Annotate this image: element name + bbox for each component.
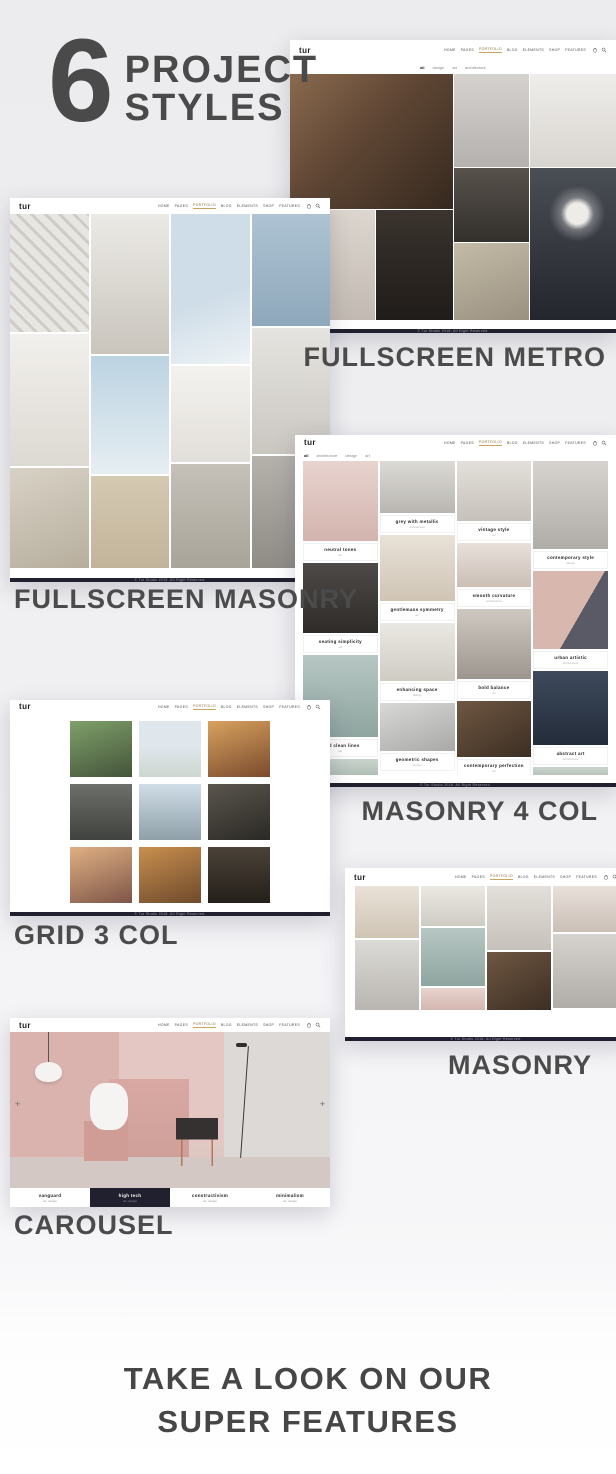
project-card[interactable]: geometric shapesdesign	[380, 753, 455, 771]
project-category: art	[492, 769, 496, 773]
hero-number: 6	[48, 34, 112, 128]
project-category: architecture	[486, 599, 502, 603]
masonry-column	[10, 214, 89, 568]
project-title: bold balance	[478, 685, 509, 690]
carousel-tabs: vanguard art, design high tech art, desi…	[10, 1188, 330, 1207]
hero-decor-floor-lamp-head	[236, 1043, 247, 1047]
hero-decor-cloth	[90, 1083, 128, 1130]
project-card[interactable]: urban artisticarchitecture	[533, 651, 608, 669]
carousel-tab-title: minimalism	[276, 1193, 304, 1198]
project-photo[interactable]	[171, 214, 250, 364]
screenshot-card-carousel[interactable]: tur HOMEPAGESPORTFOLIOBLOGELEMENTSSHOPFE…	[10, 1018, 330, 1207]
hero-title-line2: STYLES	[125, 89, 318, 127]
nav-item[interactable]: FEATURES	[279, 204, 300, 208]
project-category: art	[492, 691, 496, 695]
copyright-text: © Tur Studio 2018. All Right Reserved.	[417, 329, 488, 333]
project-photo[interactable]	[421, 988, 485, 1010]
project-photo[interactable]	[380, 703, 455, 751]
nav-item[interactable]: FEATURES	[279, 1023, 300, 1027]
portfolio-filters: allarchitecturedesignart	[295, 450, 616, 461]
project-card[interactable]: vintage styleart	[457, 523, 532, 541]
filter-item[interactable]: architecture	[316, 453, 337, 458]
carousel-tab-category: art, design	[123, 1199, 137, 1203]
project-title: urban artistic	[554, 655, 587, 660]
masonry-column: contemporary styledesign urban artistica…	[533, 461, 608, 775]
header-icons	[592, 440, 607, 446]
screenshot-card-masonry[interactable]: tur HOMEPAGESPORTFOLIOBLOGELEMENTSSHOPFE…	[345, 868, 616, 1041]
mini-nav: HOMEPAGESPORTFOLIOBLOGELEMENTSSHOPFEATUR…	[158, 203, 300, 209]
screenshot-card-fullscreen-masonry[interactable]: tur HOMEPAGESPORTFOLIOBLOGELEMENTSSHOPFE…	[10, 198, 330, 582]
project-photo[interactable]	[454, 168, 529, 242]
features-heading-line1: TAKE A LOOK ON OUR	[124, 1361, 493, 1396]
search-icon[interactable]	[315, 704, 321, 710]
hero-decor-chair	[176, 1118, 218, 1166]
project-photo[interactable]	[533, 671, 608, 745]
project-photo[interactable]	[355, 886, 419, 938]
project-photo[interactable]	[421, 886, 485, 926]
project-category: design	[413, 693, 422, 697]
project-title: contemporary style	[547, 555, 594, 560]
project-photo[interactable]	[421, 928, 485, 986]
project-photo[interactable]	[208, 784, 270, 840]
carousel-tab-title: constructivism	[192, 1193, 228, 1198]
cart-icon[interactable]	[603, 874, 609, 880]
mini-nav: HOMEPAGESPORTFOLIOBLOGELEMENTSSHOPFEATUR…	[158, 704, 300, 710]
cart-icon[interactable]	[306, 1022, 312, 1028]
project-category: architecture	[409, 525, 425, 529]
project-photo[interactable]	[10, 468, 89, 568]
project-card[interactable]: neutral tonesart	[303, 543, 378, 561]
header-icons	[603, 874, 616, 880]
project-photo[interactable]	[487, 886, 551, 950]
hero-decor-pendant-lamp	[35, 1062, 62, 1082]
project-title: seating simplicity	[319, 639, 362, 644]
project-grid	[10, 713, 330, 903]
nav-item[interactable]: ELEMENTS	[534, 875, 555, 879]
style-label-carousel: CAROUSEL	[14, 1210, 174, 1241]
project-card[interactable]: grey with metallicarchitecture	[380, 515, 455, 533]
project-photo[interactable]	[208, 721, 270, 777]
mini-browser-header: tur HOMEPAGESPORTFOLIOBLOGELEMENTSSHOPFE…	[345, 868, 616, 886]
features-intro-section: TAKE A LOOK ON OUR SUPER FEATURES	[0, 1262, 616, 1474]
project-photo[interactable]	[457, 609, 532, 679]
hero-title-line1: PROJECT	[125, 51, 318, 89]
project-photo[interactable]	[171, 366, 250, 462]
search-icon[interactable]	[315, 203, 321, 209]
cart-icon[interactable]	[306, 704, 312, 710]
carousel-next-icon[interactable]: +	[320, 1100, 325, 1109]
filter-item[interactable]: design	[433, 65, 445, 70]
project-card[interactable]: smooth curvaturearchitecture	[457, 589, 532, 607]
project-photo[interactable]	[457, 461, 532, 521]
mini-browser-header: tur HOMEPAGESPORTFOLIOBLOGELEMENTSSHOPFE…	[290, 40, 616, 60]
copyright-text: © Tur Studio 2018. All Right Reserved.	[450, 1037, 521, 1041]
site-logo[interactable]: tur	[19, 702, 31, 711]
search-icon[interactable]	[601, 47, 607, 53]
project-grid	[345, 886, 616, 1010]
mini-browser-header: tur HOMEPAGESPORTFOLIOBLOGELEMENTSSHOPFE…	[10, 700, 330, 713]
cart-icon[interactable]	[592, 47, 598, 53]
nav-item[interactable]: HOME	[444, 48, 456, 52]
search-icon[interactable]	[315, 1022, 321, 1028]
header-icons	[306, 1022, 321, 1028]
project-photo[interactable]	[70, 721, 132, 777]
nav-item[interactable]: ELEMENTS	[237, 1023, 258, 1027]
project-title: gentlemans symmetry	[391, 607, 444, 612]
project-card[interactable]: bold balanceart	[457, 681, 532, 699]
project-grid: neutral tonesart seating simplicityart b…	[295, 461, 616, 775]
nav-item[interactable]: FEATURES	[565, 48, 586, 52]
project-title: abstract art	[557, 751, 585, 756]
filter-item[interactable]: design	[345, 453, 357, 458]
project-photo[interactable]	[70, 784, 132, 840]
style-label-masonry-4-col: MASONRY 4 COL	[361, 796, 598, 827]
project-category: art	[339, 749, 343, 753]
nav-item[interactable]: PAGES	[461, 48, 474, 52]
project-photo[interactable]	[252, 214, 331, 326]
hero-title: PROJECT STYLES	[125, 51, 318, 128]
site-logo[interactable]: tur	[354, 873, 366, 882]
masonry-column	[553, 886, 616, 1010]
nav-item[interactable]: PAGES	[472, 875, 485, 879]
mini-browser-header: tur HOMEPAGESPORTFOLIOBLOGELEMENTSSHOPFE…	[10, 1018, 330, 1032]
project-grid	[10, 214, 330, 568]
nav-item[interactable]: BLOG	[221, 1023, 232, 1027]
project-photo[interactable]	[139, 847, 201, 903]
carousel-tab-category: art, design	[203, 1199, 217, 1203]
project-card[interactable]: seating simplicityart	[303, 635, 378, 653]
project-photo[interactable]	[355, 940, 419, 1010]
nav-item[interactable]: ELEMENTS	[237, 204, 258, 208]
site-footer-bar: © Tur Studio 2018. All Right Reserved.	[345, 1037, 616, 1041]
screenshot-card-fullscreen-metro[interactable]: tur HOMEPAGESPORTFOLIOBLOGELEMENTSSHOPFE…	[290, 40, 616, 333]
masonry-column	[171, 214, 250, 568]
mini-nav: HOMEPAGESPORTFOLIOBLOGELEMENTSSHOPFEATUR…	[444, 47, 586, 53]
project-photo[interactable]	[139, 721, 201, 777]
nav-item[interactable]: PORTFOLIO	[193, 1022, 216, 1028]
screenshot-card-grid-3-col[interactable]: tur HOMEPAGESPORTFOLIOBLOGELEMENTSSHOPFE…	[10, 700, 330, 916]
project-photo[interactable]	[380, 623, 455, 681]
filter-item[interactable]: architecture	[465, 65, 486, 70]
cart-icon[interactable]	[592, 440, 598, 446]
carousel-tab-title: high tech	[119, 1193, 142, 1198]
carousel-tab[interactable]: constructivism art, design	[170, 1188, 250, 1207]
project-title: neutral tones	[324, 547, 356, 552]
project-photo[interactable]	[70, 847, 132, 903]
site-logo[interactable]: tur	[19, 202, 31, 211]
site-footer-bar: © Tur Studio 2018. All Right Reserved.	[10, 912, 330, 916]
search-icon[interactable]	[612, 874, 616, 880]
project-category: art	[492, 533, 496, 537]
project-photo[interactable]	[91, 214, 170, 354]
project-category: architecture	[563, 661, 579, 665]
filter-item[interactable]: all	[420, 65, 424, 70]
carousel-tab-category: art, design	[283, 1199, 297, 1203]
nav-item[interactable]: PORTFOLIO	[479, 47, 502, 53]
project-category: art	[415, 613, 419, 617]
project-photo[interactable]	[454, 243, 529, 320]
hero-heading: 6 PROJECT STYLES	[48, 34, 318, 128]
project-photo[interactable]	[380, 461, 455, 513]
nav-item[interactable]: HOME	[158, 705, 170, 709]
carousel-tab[interactable]: high tech art, design	[90, 1188, 170, 1207]
project-photo[interactable]	[533, 571, 608, 649]
project-category: art	[339, 553, 343, 557]
filter-item[interactable]: art	[452, 65, 457, 70]
project-photo[interactable]	[553, 934, 616, 1008]
masonry-column	[487, 886, 551, 1010]
project-photo[interactable]	[530, 74, 616, 167]
copyright-text: © Tur Studio 2018. All Right Reserved.	[134, 578, 205, 582]
carousel-slide-image[interactable]: + +	[10, 1032, 330, 1188]
carousel-tab-category: art, design	[43, 1199, 57, 1203]
project-photo[interactable]	[303, 461, 378, 541]
nav-item[interactable]: HOME	[158, 1023, 170, 1027]
project-card[interactable]: enhancing spacedesign	[380, 683, 455, 701]
features-heading-line2: SUPER FEATURES	[157, 1404, 458, 1439]
mini-nav: HOMEPAGESPORTFOLIOBLOGELEMENTSSHOPFEATUR…	[444, 440, 586, 446]
filter-item[interactable]: art	[365, 453, 370, 458]
project-photo[interactable]	[553, 886, 616, 932]
project-photo[interactable]	[457, 543, 532, 587]
nav-item[interactable]: SHOP	[263, 204, 274, 208]
nav-item[interactable]: PORTFOLIO	[479, 440, 502, 446]
nav-item[interactable]: HOME	[455, 875, 467, 879]
carousel-prev-icon[interactable]: +	[15, 1100, 20, 1109]
project-title: enhancing space	[397, 687, 438, 692]
header-icons	[306, 203, 321, 209]
masonry-column: vintage styleart smooth curvaturearchite…	[457, 461, 532, 775]
project-title: geometric shapes	[396, 757, 439, 762]
header-icons	[306, 704, 321, 710]
project-photo[interactable]	[10, 334, 89, 466]
project-card[interactable]: gentlemans symmetryart	[380, 603, 455, 621]
nav-item[interactable]: SHOP	[560, 875, 571, 879]
nav-item[interactable]: PORTFOLIO	[490, 874, 513, 880]
nav-item[interactable]: HOME	[444, 441, 456, 445]
project-photo[interactable]	[454, 74, 529, 167]
style-label-masonry: MASONRY	[448, 1050, 592, 1081]
copyright-text: © Tur Studio 2018. All Right Reserved.	[420, 783, 491, 787]
project-photo[interactable]	[530, 168, 616, 320]
project-category: design	[413, 763, 422, 767]
mini-browser-header: tur HOMEPAGESPORTFOLIOBLOGELEMENTSSHOPFE…	[10, 198, 330, 214]
project-category: architecture	[563, 757, 579, 761]
masonry-column	[91, 214, 170, 568]
nav-item[interactable]: ELEMENTS	[523, 441, 544, 445]
nav-item[interactable]: PAGES	[461, 441, 474, 445]
project-grid	[290, 74, 616, 320]
project-title: vintage style	[478, 527, 509, 532]
nav-item[interactable]: BLOG	[507, 441, 518, 445]
project-photo[interactable]	[533, 767, 608, 775]
project-photo[interactable]	[533, 461, 608, 549]
project-photo[interactable]	[171, 464, 250, 568]
nav-item[interactable]: BLOG	[507, 48, 518, 52]
project-photo[interactable]	[376, 210, 453, 320]
masonry-column	[355, 886, 419, 1010]
style-label-fullscreen-metro: FULLSCREEN METRO	[304, 342, 607, 373]
nav-item[interactable]: SHOP	[263, 1023, 274, 1027]
carousel-tab[interactable]: minimalism art, design	[250, 1188, 330, 1207]
site-logo[interactable]: tur	[304, 438, 316, 447]
project-card[interactable]: abstract artarchitecture	[533, 747, 608, 765]
nav-item[interactable]: PAGES	[175, 204, 188, 208]
project-photo[interactable]	[10, 214, 89, 332]
mini-browser-header: tur HOMEPAGESPORTFOLIOBLOGELEMENTSSHOPFE…	[295, 435, 616, 450]
search-icon[interactable]	[601, 440, 607, 446]
nav-item[interactable]: SHOP	[549, 441, 560, 445]
nav-item[interactable]: PAGES	[175, 1023, 188, 1027]
hero-decor-floor	[10, 1157, 330, 1188]
nav-item[interactable]: HOME	[158, 204, 170, 208]
nav-item[interactable]: FEATURES	[576, 875, 597, 879]
nav-item[interactable]: FEATURES	[279, 705, 300, 709]
cart-icon[interactable]	[306, 203, 312, 209]
nav-item[interactable]: BLOG	[221, 204, 232, 208]
nav-item[interactable]: BLOG	[221, 705, 232, 709]
project-photo[interactable]	[91, 476, 170, 568]
mini-nav: HOMEPAGESPORTFOLIOBLOGELEMENTSSHOPFEATUR…	[455, 874, 597, 880]
nav-item[interactable]: SHOP	[263, 705, 274, 709]
project-category: design	[566, 561, 575, 565]
site-footer-bar: © Tur Studio 2018. All Right Reserved.	[10, 578, 330, 582]
nav-item[interactable]: ELEMENTS	[237, 705, 258, 709]
project-photo[interactable]	[457, 701, 532, 757]
nav-item[interactable]: FEATURES	[565, 441, 586, 445]
features-heading: TAKE A LOOK ON OUR SUPER FEATURES	[0, 1358, 616, 1444]
hero-decor-lamp-cord	[48, 1032, 49, 1062]
project-photo[interactable]	[91, 356, 170, 474]
carousel-tab-title: vanguard	[39, 1193, 62, 1198]
project-photo[interactable]	[487, 952, 551, 1010]
mini-nav: HOMEPAGESPORTFOLIOBLOGELEMENTSSHOPFEATUR…	[158, 1022, 300, 1028]
nav-item[interactable]: PAGES	[175, 705, 188, 709]
project-card[interactable]: contemporary styledesign	[533, 551, 608, 569]
style-label-grid-3-col: GRID 3 COL	[14, 920, 179, 951]
project-title: contemporary perfection	[464, 763, 524, 768]
nav-item[interactable]: ELEMENTS	[523, 48, 544, 52]
copyright-text: © Tur Studio 2018. All Right Reserved.	[134, 912, 205, 916]
project-category: art	[339, 645, 343, 649]
site-logo[interactable]: tur	[19, 1021, 31, 1030]
header-icons	[592, 47, 607, 53]
project-title: smooth curvature	[472, 593, 515, 598]
project-photo[interactable]	[208, 847, 270, 903]
masonry-column	[421, 886, 485, 1010]
style-label-fullscreen-masonry: FULLSCREEN MASONRY	[14, 584, 358, 615]
portfolio-filters: alldesignartarchitecture	[290, 60, 616, 74]
masonry-column: grey with metallicarchitecture gentleman…	[380, 461, 455, 775]
site-footer-bar: © Tur Studio 2018. All Right Reserved.	[295, 783, 616, 787]
filter-item[interactable]: all	[304, 453, 308, 458]
project-title: grey with metallic	[396, 519, 439, 524]
site-footer-bar: © Tur Studio 2018. All Right Reserved.	[290, 329, 616, 333]
nav-item[interactable]: SHOP	[549, 48, 560, 52]
project-photo[interactable]	[380, 535, 455, 601]
nav-item[interactable]: BLOG	[518, 875, 529, 879]
nav-item[interactable]: PORTFOLIO	[193, 704, 216, 710]
nav-item[interactable]: PORTFOLIO	[193, 203, 216, 209]
project-photo[interactable]	[139, 784, 201, 840]
project-card[interactable]: contemporary perfectionart	[457, 759, 532, 775]
carousel-tab[interactable]: vanguard art, design	[10, 1188, 90, 1207]
